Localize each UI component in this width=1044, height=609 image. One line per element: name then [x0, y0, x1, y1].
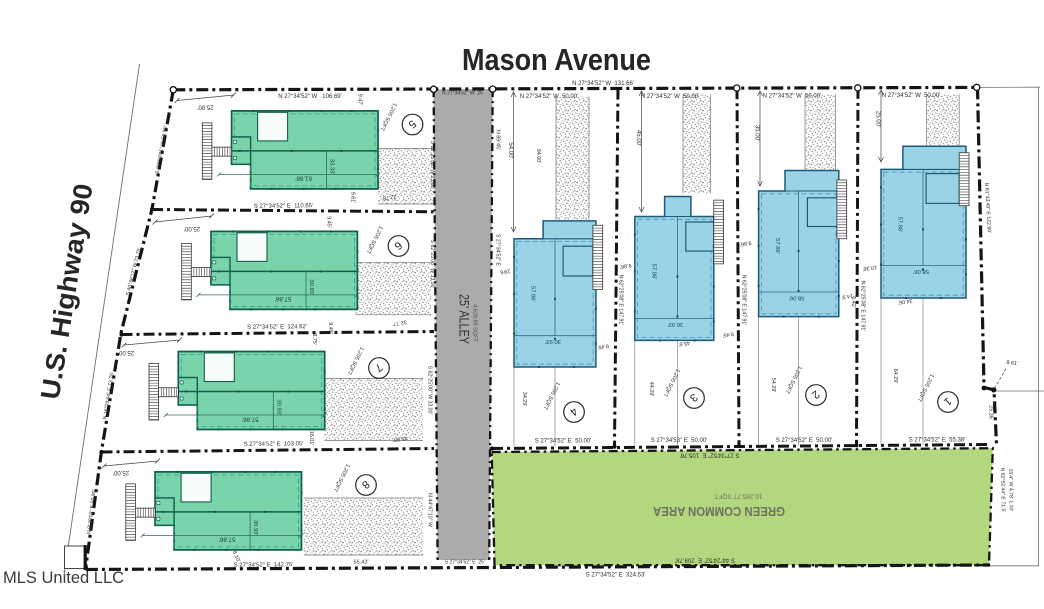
svg-text:10,285.77 SQFT.: 10,285.77 SQFT.	[713, 493, 762, 500]
svg-text:30.93': 30.93'	[252, 520, 258, 536]
svg-text:15'4" W 4.78' 1.10': 15'4" W 4.78' 1.10'	[1007, 468, 1014, 511]
svg-text:35.00': 35.00'	[754, 125, 760, 141]
svg-text:94.00': 94.00'	[535, 149, 541, 164]
svg-text:S 62°25'08" W 33.00': S 62°25'08" W 33.00'	[429, 240, 435, 289]
svg-text:57.86': 57.86'	[242, 415, 259, 422]
svg-text:S 62°25'08" W 33.00': S 62°25'08" W 33.00'	[427, 366, 433, 415]
svg-text:54.00': 54.00'	[507, 142, 513, 158]
svg-text:30.93': 30.93'	[308, 279, 314, 295]
svg-text:N 27°34'52" W 50.00': N 27°34'52" W 50.00'	[641, 94, 700, 100]
svg-text:25.00': 25.00'	[118, 349, 134, 355]
svg-text:4,629.69 SQFT: 4,629.69 SQFT	[472, 304, 478, 342]
svg-text:S 27°34'52" E: S 27°34'52" E	[495, 234, 501, 267]
svg-text:57.86': 57.86'	[774, 238, 780, 254]
svg-text:S 27°34'52" E 50.00': S 27°34'52" E 50.00'	[535, 439, 592, 445]
svg-text:9.45': 9.45'	[327, 322, 333, 334]
svg-text:33.33': 33.33'	[329, 159, 335, 175]
svg-text:S 27°34'52" E 103.05': S 27°34'52" E 103.05'	[244, 441, 304, 448]
svg-text:25.00': 25.00'	[113, 469, 129, 475]
svg-text:57.86': 57.86'	[897, 217, 903, 233]
svg-text:25' ALLEY: 25' ALLEY	[457, 294, 473, 345]
svg-text:GREEN COMMON AREA: GREEN COMMON AREA	[652, 504, 785, 519]
svg-text:9.47': 9.47'	[357, 94, 363, 106]
svg-text:N 62°25'08" E 147.91': N 62°25'08" E 147.91'	[860, 281, 866, 332]
svg-text:S 27°34'52" E 25': S 27°34'52" E 25'	[445, 560, 485, 566]
svg-text:25.00': 25.00'	[197, 103, 213, 109]
svg-text:N 27°34'52" W 106.69': N 27°34'52" W 106.69'	[278, 94, 342, 100]
svg-text:30.93': 30.93'	[275, 400, 281, 416]
svg-text:36.93': 36.93'	[668, 321, 684, 327]
svg-text:S 27°34'52" E 324.53': S 27°34'52" E 324.53'	[586, 573, 646, 579]
svg-text:N 44°47'10" W: N 44°47'10" W	[427, 493, 433, 527]
svg-text:57.86': 57.86'	[219, 536, 236, 543]
svg-text:58.06': 58.06'	[789, 294, 805, 300]
svg-text:S 27°34'52" E 50.00': S 27°34'52" E 50.00'	[776, 438, 833, 444]
svg-text:6.42': 6.42'	[850, 296, 856, 308]
svg-text:58.06': 58.06'	[913, 268, 929, 274]
svg-text:N 89°45': N 89°45'	[495, 130, 501, 150]
svg-text:S 27°34'53" E 50.00': S 27°34'53" E 50.00'	[651, 438, 708, 444]
svg-text:61.86': 61.86'	[295, 175, 312, 182]
svg-text:30.93': 30.93'	[545, 338, 561, 344]
svg-text:25.36: 25.36	[988, 405, 994, 419]
svg-text:S 62°25'08" W 33.00': S 62°25'08" W 33.00'	[429, 141, 435, 190]
svg-text:N 27°34'52" W 25: N 27°34'52" W 25	[442, 91, 483, 97]
svg-text:N 62°25'08" E 147.91': N 62°25'08" E 147.91'	[618, 275, 624, 326]
svg-text:S 27°34'52" E 55.38': S 27°34'52" E 55.38'	[909, 437, 966, 443]
svg-text:8.75': 8.75'	[311, 333, 317, 345]
svg-text:N 62°51'44" E 71.5': N 62°51'44" E 71.5'	[999, 468, 1006, 513]
svg-text:9.61': 9.61'	[350, 192, 356, 204]
svg-text:34.29': 34.29'	[521, 392, 527, 407]
svg-text:57.86': 57.86'	[530, 286, 536, 302]
svg-text:Mason Avenue: Mason Avenue	[462, 42, 651, 77]
svg-text:S 44°24'52" E 209.78': S 44°24'52" E 209.78'	[675, 556, 735, 562]
svg-text:N 27°34'52" W 131.66': N 27°34'52" W 131.66'	[572, 81, 634, 87]
svg-text:N 27°34'52" W 50.00': N 27°34'52" W 50.00'	[520, 94, 579, 100]
svg-text:45.00': 45.00'	[635, 130, 641, 146]
svg-text:S 27°34'52" E 124.62': S 27°34'52" E 124.62'	[247, 324, 307, 331]
svg-text:57.86': 57.86'	[275, 295, 292, 302]
svg-text:25.00': 25.00'	[875, 111, 881, 127]
svg-text:S 27°34'52" E 105.76': S 27°34'52" E 105.76'	[680, 451, 740, 457]
svg-text:S 27°34'52" E 110.65': S 27°34'52" E 110.65'	[254, 203, 313, 210]
svg-text:55.43': 55.43'	[353, 559, 368, 565]
svg-text:44.29': 44.29'	[648, 382, 654, 397]
svg-text:N 27°34'52" W 50.00': N 27°34'52" W 50.00'	[763, 93, 822, 99]
svg-text:N 62°25'08" E 147.91': N 62°25'08" E 147.91'	[741, 275, 747, 326]
svg-text:54.29': 54.29'	[770, 378, 776, 393]
svg-text:25.00': 25.00'	[184, 225, 200, 231]
svg-text:57.86': 57.86'	[650, 264, 656, 280]
svg-text:N 27°34'52" W 50.00': N 27°34'52" W 50.00'	[882, 93, 941, 99]
svg-text:16.01': 16.01'	[308, 431, 314, 446]
svg-text:MLS United LLC: MLS United LLC	[3, 569, 124, 587]
svg-text:S 27°34'52" E 142.75': S 27°34'52" E 142.75'	[234, 562, 294, 569]
svg-text:64.29': 64.29'	[892, 369, 898, 384]
svg-text:9.45': 9.45'	[326, 216, 332, 228]
